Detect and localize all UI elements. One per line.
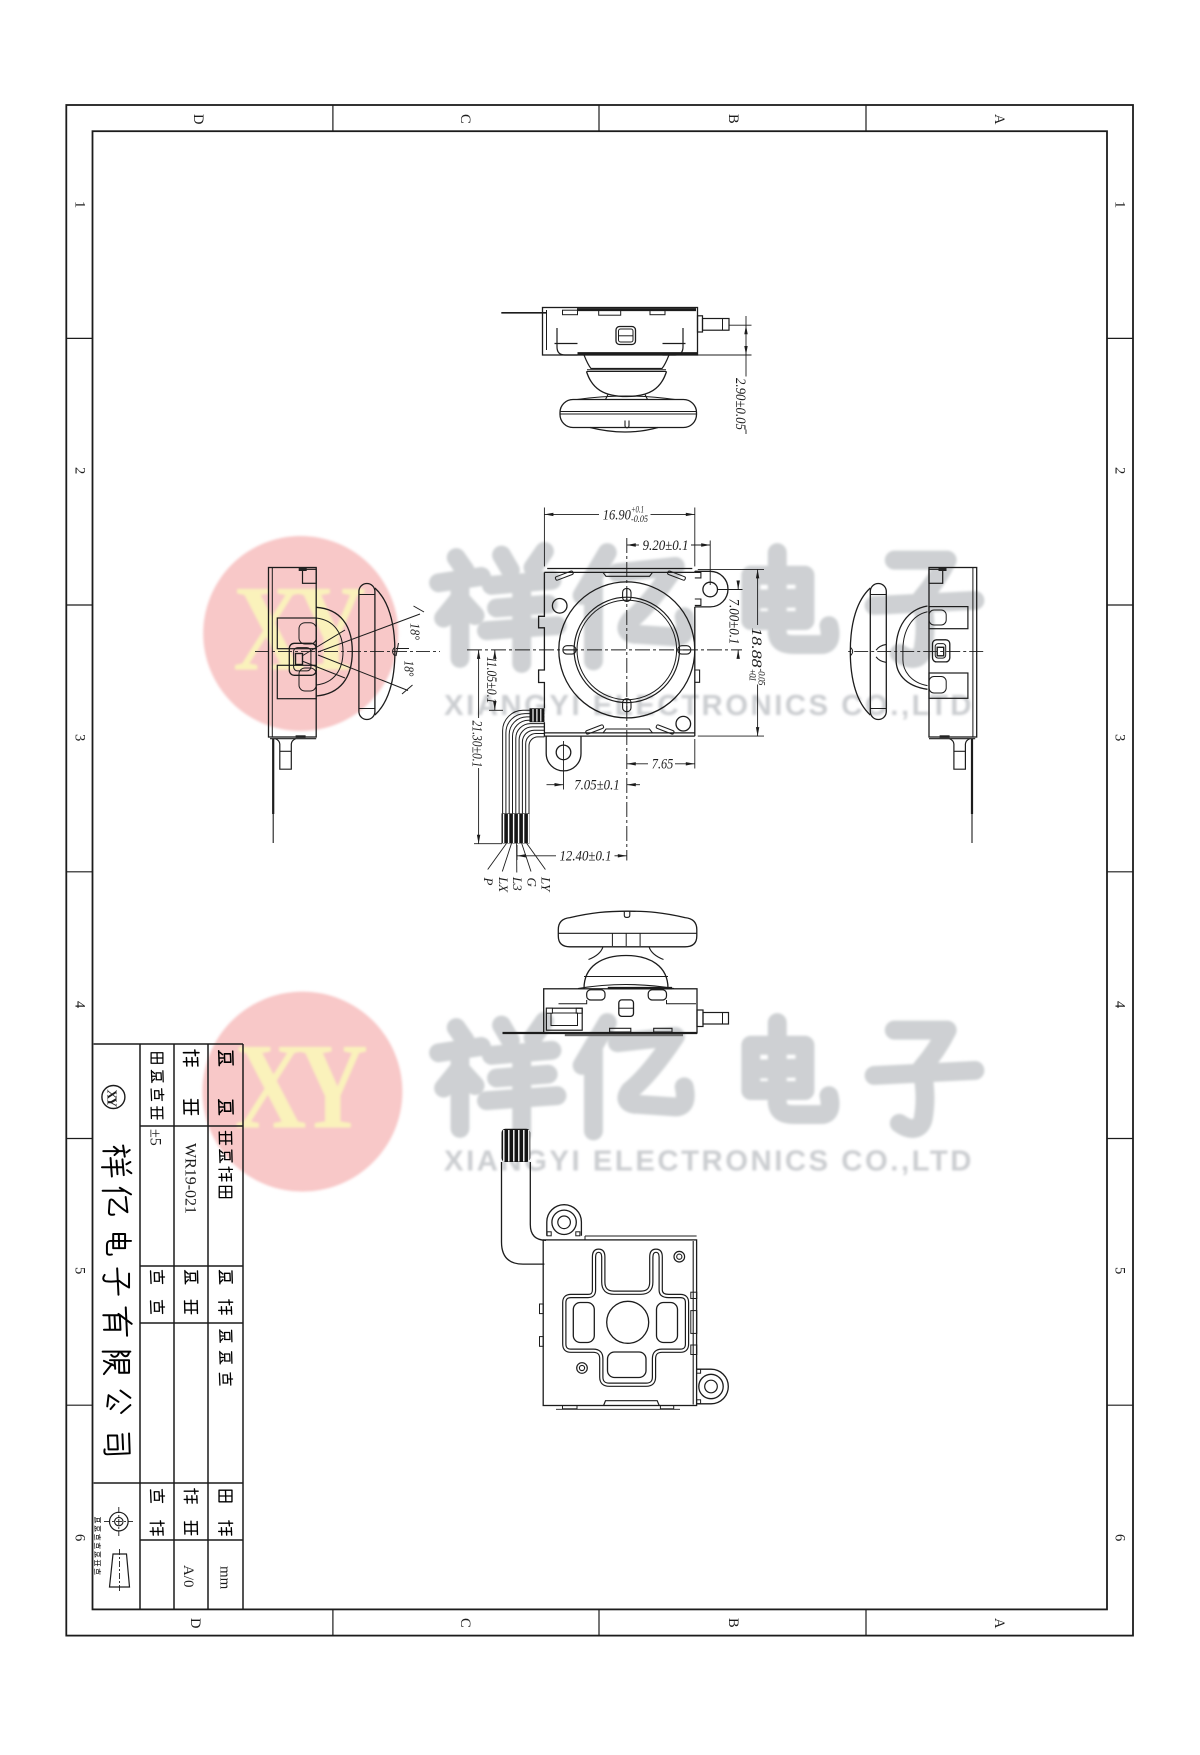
svg-text:1: 1 (72, 201, 88, 208)
svg-text:B: B (725, 114, 741, 124)
svg-text:2: 2 (72, 467, 88, 474)
svg-text:12.40±0.1: 12.40±0.1 (560, 849, 612, 865)
svg-text:4: 4 (1112, 1001, 1128, 1009)
svg-text:1: 1 (1112, 201, 1128, 208)
svg-text:A: A (991, 1618, 1007, 1629)
svg-text:L3: L3 (510, 876, 525, 891)
svg-text:16.90: 16.90 (603, 507, 632, 523)
svg-text:7.05±0.1: 7.05±0.1 (574, 778, 620, 794)
svg-text:+0.1: +0.1 (748, 669, 758, 682)
svg-text:G: G (524, 878, 539, 888)
svg-text:7.65: 7.65 (652, 757, 674, 773)
svg-text:6: 6 (1112, 1534, 1128, 1541)
svg-text:±5: ±5 (147, 1129, 164, 1146)
svg-text:3: 3 (72, 734, 88, 741)
svg-text:6: 6 (72, 1534, 88, 1541)
svg-text:4: 4 (72, 1001, 88, 1009)
svg-text:mm: mm (217, 1566, 233, 1590)
svg-text:11.05±0.1: 11.05±0.1 (483, 657, 499, 704)
svg-text:3: 3 (1112, 734, 1128, 741)
svg-text:5: 5 (72, 1267, 88, 1274)
svg-text:XY: XY (104, 1089, 119, 1107)
svg-text:2: 2 (1112, 467, 1128, 474)
svg-text:-0.05: -0.05 (757, 669, 767, 687)
svg-text:21.30±0.1: 21.30±0.1 (468, 721, 484, 768)
svg-text:9.20±0.1: 9.20±0.1 (643, 538, 689, 554)
svg-text:LX: LX (496, 876, 511, 893)
svg-text:D: D (190, 114, 206, 124)
svg-text:18.88: 18.88 (748, 628, 764, 669)
svg-text:+0.1: +0.1 (631, 504, 644, 514)
svg-text:5: 5 (1112, 1267, 1128, 1274)
svg-text:C: C (457, 114, 473, 124)
svg-text:LY: LY (538, 876, 553, 893)
svg-text:B: B (725, 1618, 741, 1628)
svg-text:WR19-021: WR19-021 (182, 1143, 199, 1214)
svg-text:D: D (187, 1618, 203, 1628)
svg-text:2.90±0.05: 2.90±0.05 (732, 378, 748, 430)
svg-text:P: P (481, 877, 496, 886)
svg-text:18°: 18° (407, 623, 422, 640)
svg-text:7.00±0.1: 7.00±0.1 (726, 599, 742, 645)
svg-text:-0.05: -0.05 (631, 514, 648, 524)
svg-text:XY: XY (235, 1020, 367, 1155)
svg-text:18°: 18° (401, 661, 416, 677)
svg-text:C: C (457, 1618, 473, 1628)
svg-text:A/0: A/0 (180, 1565, 196, 1588)
svg-text:A: A (991, 114, 1007, 125)
